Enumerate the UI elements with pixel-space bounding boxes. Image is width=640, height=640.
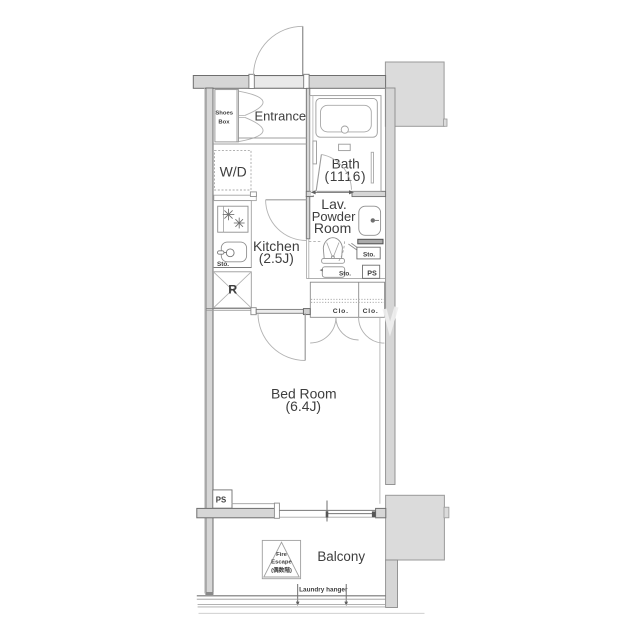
svg-text:Clo.: Clo. [333,308,349,315]
svg-text:Escape: Escape [271,559,292,565]
svg-text:Sto.: Sto. [339,271,351,278]
svg-text:Room: Room [314,220,351,236]
svg-text:PS: PS [367,268,377,277]
svg-text:Fire: Fire [276,552,288,558]
svg-text:W/D: W/D [220,163,247,179]
svg-text:Shoes: Shoes [215,111,233,117]
svg-text:Laundry hanger: Laundry hanger [299,586,348,593]
svg-text:Entrance: Entrance [254,108,306,123]
svg-text:Box: Box [218,119,230,125]
svg-text:PS: PS [216,495,226,504]
svg-text:Balcony: Balcony [317,549,365,564]
svg-text:Sto.: Sto. [363,251,375,258]
svg-text:(偶数階): (偶数階) [271,566,292,574]
svg-text:R: R [228,283,237,297]
svg-text:Clo.: Clo. [363,308,379,315]
svg-text:(2.5J): (2.5J) [259,251,294,266]
svg-text:(6.4J): (6.4J) [286,398,322,414]
